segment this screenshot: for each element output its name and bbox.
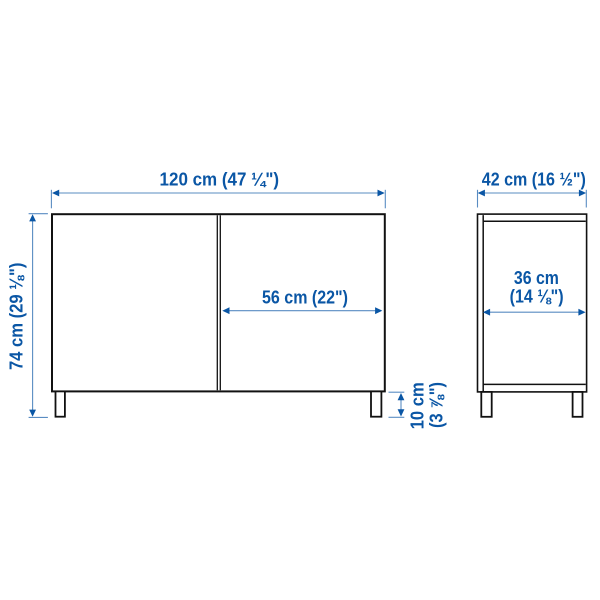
svg-text:56 cm (22"): 56 cm (22") xyxy=(262,288,348,308)
svg-text:(3 ⅞"): (3 ⅞") xyxy=(426,382,446,428)
svg-text:42 cm (16 ½"): 42 cm (16 ½") xyxy=(482,170,586,190)
svg-text:74 cm (29 ⅛"): 74 cm (29 ⅛") xyxy=(7,263,27,371)
svg-text:10 cm: 10 cm xyxy=(407,382,427,429)
svg-text:(14 ⅛"): (14 ⅛") xyxy=(510,287,564,307)
svg-text:120 cm (47 ¼"): 120 cm (47 ¼") xyxy=(160,170,280,190)
svg-text:36 cm: 36 cm xyxy=(514,268,559,288)
